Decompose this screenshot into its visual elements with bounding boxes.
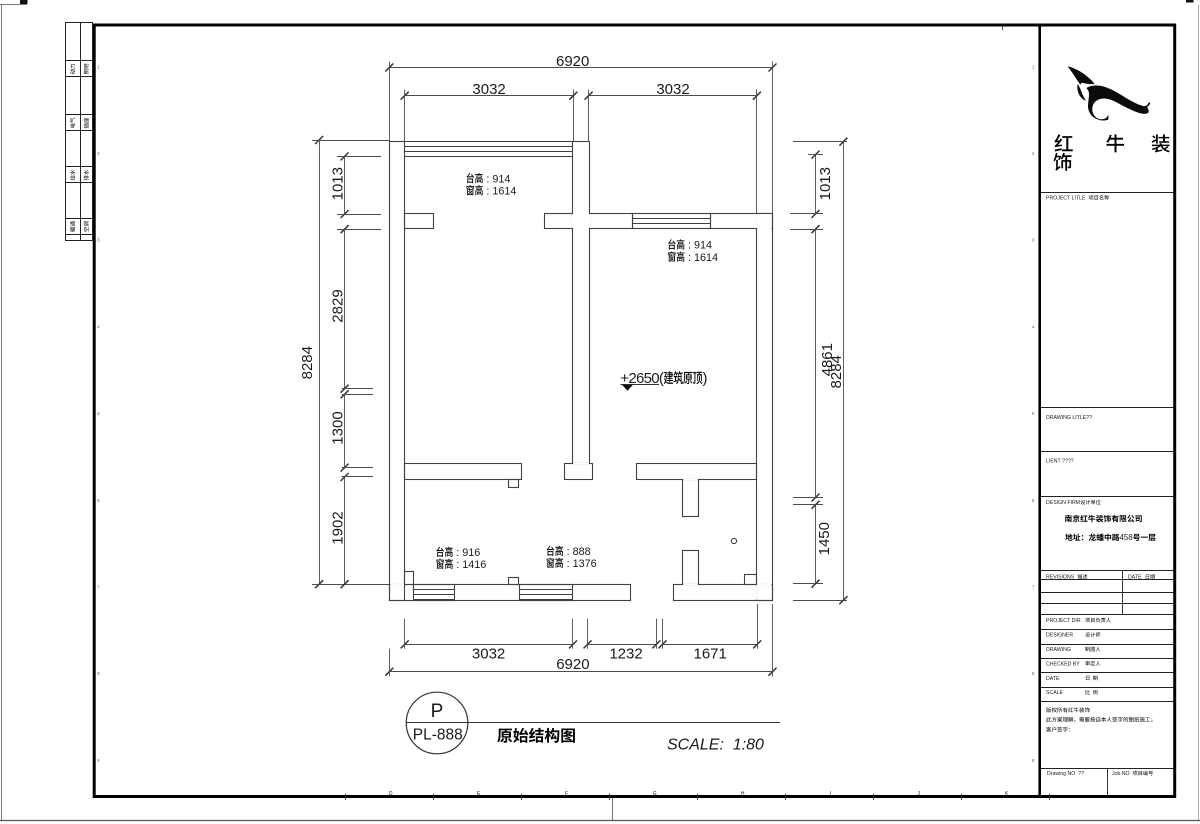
svg-text:: 1614: : 1614 <box>483 185 516 197</box>
svg-text:H: H <box>741 791 745 797</box>
svg-text:I: I <box>830 791 831 797</box>
svg-text:3032: 3032 <box>472 646 505 663</box>
svg-text:6920: 6920 <box>556 656 589 673</box>
svg-text:DRAWING LITLE??: DRAWING LITLE?? <box>1046 415 1092 421</box>
svg-text:SCALE: 1:80: SCALE: 1:80 <box>667 736 764 753</box>
svg-text:1300: 1300 <box>329 411 346 444</box>
svg-text:DATE: DATE <box>1046 676 1060 682</box>
svg-text:8284: 8284 <box>299 346 316 379</box>
svg-text:1450: 1450 <box>816 522 833 555</box>
svg-text:DRAWING: DRAWING <box>1046 647 1071 653</box>
svg-text:DESIGNER: DESIGNER <box>1046 633 1073 639</box>
svg-text:6920: 6920 <box>556 53 589 70</box>
svg-text:G: G <box>653 791 657 797</box>
svg-text:458: 458 <box>1120 533 1133 542</box>
svg-text:Drawing NO ??: Drawing NO ?? <box>1047 771 1084 777</box>
svg-text:: 1416: : 1416 <box>453 559 486 571</box>
svg-text:1013: 1013 <box>817 167 834 200</box>
svg-text:CHECKED BY: CHECKED BY <box>1046 661 1080 667</box>
svg-text:1232: 1232 <box>609 646 642 663</box>
svg-text:8284: 8284 <box>828 355 845 388</box>
svg-text:1013: 1013 <box>329 167 346 200</box>
svg-text:PL-888: PL-888 <box>413 726 463 743</box>
svg-text:DATE: DATE <box>1128 575 1144 581</box>
svg-text:: 888: : 888 <box>564 546 591 558</box>
svg-text:Job NO: Job NO <box>1112 771 1132 777</box>
svg-text:1902: 1902 <box>329 511 346 544</box>
svg-text:PROJECT DIR: PROJECT DIR <box>1046 618 1081 624</box>
svg-text:: 916: : 916 <box>453 547 480 559</box>
svg-text:D: D <box>389 791 393 797</box>
svg-text:1671: 1671 <box>694 646 727 663</box>
svg-text:SCALE: SCALE <box>1046 690 1064 696</box>
svg-text:3032: 3032 <box>656 81 689 98</box>
svg-text:: 914: : 914 <box>685 240 712 252</box>
svg-text:: 1614: : 1614 <box>685 252 718 264</box>
svg-text:: 1376: : 1376 <box>564 558 597 570</box>
svg-text:PROJECT LITLE: PROJECT LITLE <box>1046 196 1088 202</box>
svg-text:F: F <box>565 791 568 797</box>
svg-text:2829: 2829 <box>329 289 346 322</box>
svg-text:3032: 3032 <box>472 81 505 98</box>
svg-text:P: P <box>431 701 444 722</box>
svg-text:DESIGN FIRM: DESIGN FIRM <box>1046 500 1080 506</box>
svg-text:REVISIONS: REVISIONS <box>1046 575 1077 581</box>
svg-text:: 914: : 914 <box>483 173 510 185</box>
svg-text:): ) <box>703 370 708 387</box>
svg-text:LIENT ????: LIENT ???? <box>1046 459 1074 465</box>
